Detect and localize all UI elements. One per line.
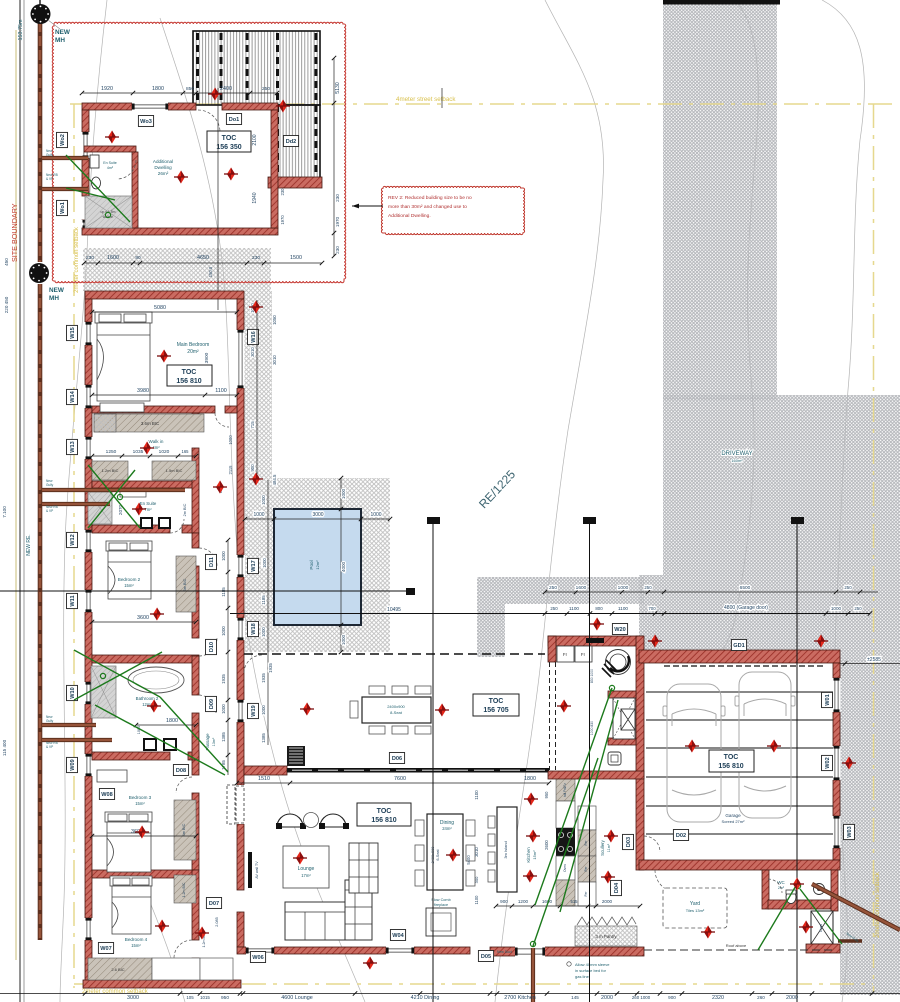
svg-text:850: 850 bbox=[186, 86, 194, 92]
svg-text:D06: D06 bbox=[392, 756, 402, 762]
svg-text:1000 830: 1000 830 bbox=[590, 721, 594, 735]
svg-text:& VP: & VP bbox=[46, 509, 53, 513]
svg-text:1050: 1050 bbox=[272, 315, 277, 325]
svg-text:230: 230 bbox=[252, 255, 260, 261]
svg-text:115 400: 115 400 bbox=[2, 739, 7, 756]
svg-text:W10: W10 bbox=[70, 687, 76, 699]
svg-text:2000: 2000 bbox=[601, 995, 613, 1001]
svg-text:260: 260 bbox=[757, 995, 765, 1000]
svg-text:W08: W08 bbox=[101, 792, 113, 798]
svg-text:1000: 1000 bbox=[253, 512, 264, 518]
svg-text:Gully: Gully bbox=[46, 153, 54, 157]
svg-text:1600: 1600 bbox=[107, 255, 119, 261]
svg-text:1100: 1100 bbox=[618, 606, 628, 611]
svg-text:more than 30m² and changed use: more than 30m² and changed use to bbox=[388, 204, 467, 210]
svg-text:1000: 1000 bbox=[221, 551, 226, 561]
svg-text:3980: 3980 bbox=[137, 388, 149, 394]
svg-text:TOC: TOC bbox=[377, 808, 392, 815]
svg-text:Bedroom 2: Bedroom 2 bbox=[118, 577, 141, 582]
svg-text:WC: WC bbox=[777, 880, 784, 885]
svg-text:in surface bed for: in surface bed for bbox=[575, 968, 607, 973]
svg-text:1385: 1385 bbox=[261, 733, 266, 743]
svg-text:3m Island: 3m Island bbox=[503, 841, 508, 858]
svg-text:MH: MH bbox=[55, 37, 65, 44]
svg-text:13m²: 13m² bbox=[212, 737, 216, 746]
svg-text:4650: 4650 bbox=[197, 255, 209, 261]
svg-text:W16: W16 bbox=[251, 331, 257, 343]
svg-text:D05: D05 bbox=[481, 954, 491, 960]
svg-text:En Suite: En Suite bbox=[140, 501, 157, 506]
svg-text:DRIVEWAY: DRIVEWAY bbox=[721, 451, 752, 457]
svg-text:2000: 2000 bbox=[602, 899, 613, 904]
svg-text:17m²: 17m² bbox=[301, 873, 311, 878]
svg-text:2m BIC: 2m BIC bbox=[183, 503, 187, 516]
svg-text:1000: 1000 bbox=[261, 495, 266, 505]
svg-text:1000: 1000 bbox=[262, 558, 267, 568]
svg-text:1385: 1385 bbox=[221, 732, 226, 742]
svg-text:Slow Comb: Slow Comb bbox=[431, 898, 450, 902]
svg-text:1510: 1510 bbox=[258, 776, 270, 782]
svg-text:484.5: 484.5 bbox=[272, 474, 277, 486]
svg-text:3600: 3600 bbox=[137, 615, 149, 621]
svg-text:156 705: 156 705 bbox=[483, 707, 508, 714]
svg-text:2.085: 2.085 bbox=[215, 917, 219, 927]
svg-text:Pool: Pool bbox=[309, 560, 314, 569]
svg-text:5130: 5130 bbox=[335, 82, 341, 94]
svg-text:1020: 1020 bbox=[159, 449, 170, 455]
svg-text:Scullery: Scullery bbox=[600, 839, 605, 855]
svg-text:1100: 1100 bbox=[474, 895, 479, 905]
svg-text:2100: 2100 bbox=[252, 134, 258, 145]
svg-text:D07: D07 bbox=[209, 901, 219, 907]
svg-text:2600: 2600 bbox=[544, 840, 549, 850]
svg-text:300: 300 bbox=[474, 876, 479, 883]
svg-text:±2585: ±2585 bbox=[867, 657, 881, 663]
svg-text:W15: W15 bbox=[70, 327, 76, 339]
svg-text:GD1: GD1 bbox=[733, 643, 745, 649]
svg-text:1000: 1000 bbox=[261, 705, 266, 715]
svg-text:Tiles 13m²: Tiles 13m² bbox=[686, 908, 705, 913]
svg-text:20m²: 20m² bbox=[187, 349, 199, 355]
svg-text:Additional Dwelling.: Additional Dwelling. bbox=[388, 213, 431, 219]
svg-text:REV 2: Reduced building size t: REV 2: Reduced building size to be no bbox=[388, 195, 472, 201]
svg-text:En Suite: En Suite bbox=[103, 161, 117, 165]
svg-text:11m²: 11m² bbox=[607, 843, 611, 852]
svg-text:1015: 1015 bbox=[200, 995, 210, 1000]
svg-text:TOC: TOC bbox=[182, 369, 197, 376]
svg-text:1935: 1935 bbox=[268, 663, 273, 673]
svg-text:1.2m BIC: 1.2m BIC bbox=[182, 882, 186, 897]
svg-text:W04: W04 bbox=[392, 933, 404, 939]
svg-text:D02: D02 bbox=[676, 833, 686, 839]
svg-text:Fr: Fr bbox=[581, 652, 586, 657]
svg-text:W14: W14 bbox=[70, 390, 76, 402]
svg-text:1035: 1035 bbox=[133, 449, 144, 455]
svg-text:Lounge: Lounge bbox=[298, 866, 315, 872]
svg-text:2400x900: 2400x900 bbox=[387, 704, 405, 709]
svg-text:250: 250 bbox=[550, 606, 558, 611]
svg-text:156 350: 156 350 bbox=[216, 144, 241, 151]
svg-text:950: 950 bbox=[544, 791, 549, 799]
svg-text:W17: W17 bbox=[251, 560, 257, 572]
svg-text:Main Bedroom: Main Bedroom bbox=[177, 342, 210, 348]
svg-text:Fr: Fr bbox=[563, 652, 568, 657]
svg-text:90: 90 bbox=[135, 255, 141, 261]
svg-text:NEW: NEW bbox=[49, 287, 65, 294]
svg-text:3010: 3010 bbox=[272, 355, 277, 365]
svg-text:15m²: 15m² bbox=[135, 801, 145, 806]
svg-text:TOC: TOC bbox=[222, 135, 237, 142]
svg-text:230: 230 bbox=[86, 255, 94, 261]
svg-text:& VP: & VP bbox=[46, 177, 53, 181]
svg-text:2400: 2400 bbox=[220, 86, 232, 92]
svg-text:D11: D11 bbox=[209, 557, 215, 567]
svg-text:4000: 4000 bbox=[341, 561, 346, 572]
svg-text:2320: 2320 bbox=[712, 995, 724, 1001]
svg-text:2700 Kitchen: 2700 Kitchen bbox=[504, 995, 535, 1001]
svg-text:250: 250 bbox=[644, 585, 652, 590]
svg-text:5080: 5080 bbox=[154, 305, 166, 311]
svg-text:4m BIC: 4m BIC bbox=[183, 578, 187, 591]
svg-text:5400: 5400 bbox=[466, 855, 471, 865]
svg-text:1970: 1970 bbox=[280, 215, 285, 225]
svg-text:1100: 1100 bbox=[215, 388, 227, 394]
svg-text:800: 800 bbox=[595, 606, 603, 611]
svg-text:6-Seat: 6-Seat bbox=[436, 848, 440, 860]
svg-text:230: 230 bbox=[335, 246, 340, 254]
svg-text:2000: 2000 bbox=[786, 995, 798, 1001]
svg-text:250: 250 bbox=[549, 585, 557, 591]
svg-text:Additional: Additional bbox=[153, 159, 173, 164]
svg-text:15m²: 15m² bbox=[532, 850, 537, 860]
svg-text:W06: W06 bbox=[252, 955, 264, 961]
svg-text:1000: 1000 bbox=[618, 585, 629, 591]
svg-text:1000: 1000 bbox=[831, 606, 842, 611]
svg-text:W09: W09 bbox=[70, 759, 76, 771]
svg-text:Duct: Duct bbox=[819, 924, 823, 931]
svg-text:Gully: Gully bbox=[46, 719, 54, 723]
svg-text:3900: 3900 bbox=[204, 352, 210, 363]
svg-text:W19: W19 bbox=[251, 705, 257, 717]
svg-text:3010: 3010 bbox=[474, 847, 479, 857]
svg-text:D08: D08 bbox=[176, 768, 186, 774]
svg-text:Fer: Fer bbox=[584, 840, 588, 846]
svg-text:1250: 1250 bbox=[106, 449, 117, 455]
svg-text:450: 450 bbox=[4, 258, 9, 266]
svg-text:15m²: 15m² bbox=[131, 943, 141, 948]
svg-text:AV wall TV: AV wall TV bbox=[255, 861, 259, 879]
svg-text:Oven: Oven bbox=[563, 864, 567, 872]
svg-text:1185: 1185 bbox=[261, 595, 266, 605]
svg-text:W13: W13 bbox=[70, 441, 76, 453]
svg-text:MH: MH bbox=[49, 295, 59, 302]
svg-text:105: 105 bbox=[186, 995, 194, 1000]
svg-text:Bathroom 2: Bathroom 2 bbox=[136, 696, 159, 701]
svg-text:1800: 1800 bbox=[166, 718, 178, 724]
svg-text:W02: W02 bbox=[825, 757, 831, 769]
svg-text:900: 900 bbox=[250, 464, 255, 472]
svg-text:1940: 1940 bbox=[252, 192, 258, 203]
svg-text:165: 165 bbox=[182, 449, 190, 454]
svg-text:Wo3: Wo3 bbox=[140, 119, 152, 125]
svg-text:4meter street setback: 4meter street setback bbox=[396, 96, 456, 103]
svg-text:160m²: 160m² bbox=[731, 458, 743, 463]
svg-text:1600: 1600 bbox=[576, 585, 587, 591]
svg-text:4m BIC: 4m BIC bbox=[182, 823, 186, 836]
svg-text:1935: 1935 bbox=[221, 674, 226, 684]
svg-text:Do1: Do1 bbox=[229, 117, 240, 123]
svg-text:1100: 1100 bbox=[569, 606, 579, 611]
svg-text:220 450: 220 450 bbox=[4, 296, 9, 313]
svg-text:3.6m BIC: 3.6m BIC bbox=[141, 421, 159, 426]
svg-text:7.100: 7.100 bbox=[2, 506, 7, 518]
svg-text:1800: 1800 bbox=[524, 776, 536, 782]
svg-text:1000: 1000 bbox=[228, 435, 233, 445]
svg-text:D10: D10 bbox=[209, 642, 215, 652]
svg-text:1800: 1800 bbox=[152, 86, 164, 92]
svg-text:4210 Dining: 4210 Dining bbox=[411, 995, 440, 1001]
svg-text:230: 230 bbox=[280, 188, 285, 196]
svg-text:145: 145 bbox=[571, 995, 579, 1000]
svg-text:Yard: Yard bbox=[690, 901, 700, 907]
svg-text:156 810: 156 810 bbox=[718, 763, 743, 770]
svg-text:4m²: 4m² bbox=[107, 166, 114, 170]
svg-text:Allow 40mm sleeve: Allow 40mm sleeve bbox=[575, 962, 610, 967]
svg-text:830 1000: 830 1000 bbox=[590, 669, 594, 683]
svg-text:1100: 1100 bbox=[474, 790, 479, 800]
svg-text:1185: 1185 bbox=[221, 587, 226, 597]
svg-text:3000: 3000 bbox=[127, 995, 139, 1001]
svg-text:715: 715 bbox=[250, 421, 255, 429]
svg-text:1000: 1000 bbox=[341, 634, 346, 645]
svg-text:900: 900 bbox=[668, 995, 676, 1000]
svg-text:6500: 6500 bbox=[740, 585, 751, 591]
svg-text:gas line: gas line bbox=[575, 974, 590, 979]
svg-text:260 1000: 260 1000 bbox=[632, 995, 651, 1000]
svg-text:Garage: Garage bbox=[725, 813, 741, 818]
svg-text:230: 230 bbox=[335, 194, 340, 202]
svg-text:SITE BOUNDARY: SITE BOUNDARY bbox=[10, 203, 19, 262]
svg-text:1970: 1970 bbox=[335, 216, 340, 227]
svg-text:fireplace: fireplace bbox=[434, 903, 448, 907]
svg-text:15m²: 15m² bbox=[124, 583, 134, 588]
svg-text:W18: W18 bbox=[251, 623, 257, 635]
svg-text:Wo1: Wo1 bbox=[60, 202, 66, 214]
svg-text:1000: 1000 bbox=[221, 704, 226, 714]
svg-text:1500: 1500 bbox=[290, 255, 302, 261]
svg-text:Screed 27m²: Screed 27m² bbox=[722, 819, 746, 824]
svg-text:Fer: Fer bbox=[584, 866, 588, 872]
svg-text:Bedroom 4: Bedroom 4 bbox=[125, 937, 148, 942]
svg-text:950: 950 bbox=[221, 995, 229, 1001]
svg-text:Kitchen: Kitchen bbox=[526, 847, 531, 863]
svg-text:12m²: 12m² bbox=[315, 560, 320, 570]
svg-text:2.6 BIC: 2.6 BIC bbox=[111, 967, 124, 972]
svg-text:4800 (Garage door): 4800 (Garage door) bbox=[724, 605, 768, 611]
svg-text:TOC: TOC bbox=[724, 754, 739, 761]
svg-text:Fer: Fer bbox=[584, 891, 588, 897]
svg-text:8-Seat: 8-Seat bbox=[390, 710, 403, 715]
svg-text:26m²: 26m² bbox=[158, 171, 169, 176]
svg-text:tall Fr&Fz: tall Fr&Fz bbox=[563, 783, 567, 797]
svg-text:W12: W12 bbox=[70, 534, 76, 546]
svg-text:900: 900 bbox=[500, 899, 508, 904]
svg-text:Dd2: Dd2 bbox=[286, 139, 297, 145]
svg-text:3010: 3010 bbox=[250, 347, 255, 357]
svg-text:2meter common setback: 2meter common setback bbox=[875, 871, 881, 938]
svg-text:D04: D04 bbox=[614, 882, 620, 893]
svg-text:3000: 3000 bbox=[312, 512, 323, 518]
svg-text:250: 250 bbox=[262, 86, 270, 92]
svg-text:Dwelling: Dwelling bbox=[154, 165, 172, 170]
svg-text:W20: W20 bbox=[614, 627, 626, 633]
svg-text:1.2m BIC: 1.2m BIC bbox=[102, 468, 119, 473]
svg-text:& VP: & VP bbox=[46, 745, 53, 749]
svg-text:2115: 2115 bbox=[228, 465, 233, 475]
svg-text:New Duct: New Duct bbox=[497, 950, 512, 954]
svg-text:1000: 1000 bbox=[370, 512, 381, 518]
svg-text:W07: W07 bbox=[100, 946, 112, 952]
svg-text:515: 515 bbox=[571, 899, 579, 904]
svg-text:TOC: TOC bbox=[489, 698, 504, 705]
svg-text:250: 250 bbox=[844, 585, 852, 590]
svg-text:W01: W01 bbox=[825, 694, 831, 706]
svg-text:Wo2: Wo2 bbox=[60, 134, 66, 146]
svg-text:700: 700 bbox=[648, 606, 656, 611]
svg-text:24m²: 24m² bbox=[442, 826, 452, 831]
svg-text:1935: 1935 bbox=[261, 673, 266, 683]
svg-text:153.75m: 153.75m bbox=[18, 19, 24, 40]
svg-text:NEW: NEW bbox=[55, 29, 71, 36]
svg-text:7600: 7600 bbox=[394, 776, 406, 782]
svg-text:Roof above: Roof above bbox=[726, 943, 747, 948]
svg-text:3 m Pantry: 3 m Pantry bbox=[595, 934, 617, 939]
svg-text:250: 250 bbox=[854, 606, 862, 611]
svg-text:D09: D09 bbox=[209, 699, 215, 709]
svg-text:NEW RE.: NEW RE. bbox=[26, 534, 32, 555]
svg-text:1200: 1200 bbox=[518, 899, 529, 904]
svg-text:Walk in: Walk in bbox=[149, 439, 164, 444]
svg-text:4600 Lounge: 4600 Lounge bbox=[281, 995, 312, 1001]
svg-text:150.0: 150.0 bbox=[208, 266, 213, 277]
svg-text:1000: 1000 bbox=[341, 488, 346, 499]
svg-text:W11: W11 bbox=[70, 595, 76, 606]
svg-text:Bedroom 3: Bedroom 3 bbox=[129, 795, 152, 800]
svg-text:D03: D03 bbox=[626, 837, 632, 847]
svg-text:156 810: 156 810 bbox=[176, 378, 201, 385]
svg-text:W03: W03 bbox=[847, 826, 853, 838]
svg-text:1000: 1000 bbox=[261, 627, 266, 637]
svg-text:Gully: Gully bbox=[46, 483, 54, 487]
svg-text:1920: 1920 bbox=[101, 86, 113, 92]
svg-text:1000: 1000 bbox=[221, 626, 226, 636]
svg-text:156 810: 156 810 bbox=[371, 817, 396, 824]
svg-text:10495: 10495 bbox=[387, 607, 401, 613]
svg-text:1.5m BIC: 1.5m BIC bbox=[166, 468, 183, 473]
